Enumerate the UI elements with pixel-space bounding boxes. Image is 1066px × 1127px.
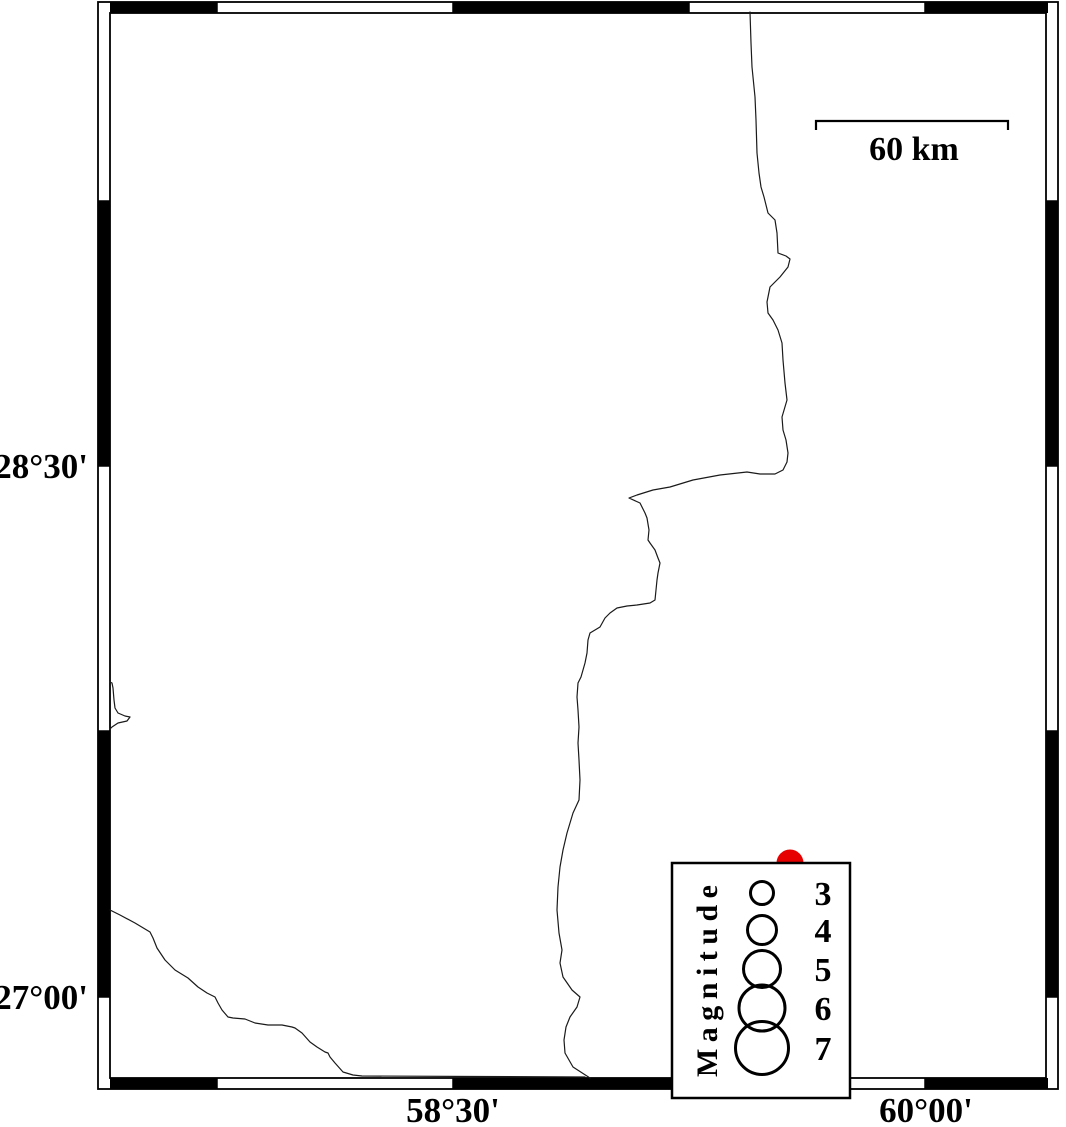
- frame-segment: [925, 1078, 1048, 1089]
- coastline-southwest: [110, 910, 585, 1077]
- legend-value-m3: 3: [815, 876, 832, 913]
- lon-tick-label-6000: 60°00': [879, 1091, 973, 1127]
- lat-tick-label-2830: 28°30': [0, 447, 88, 486]
- seismicity-map-figure: 60 km Magnitude 3 4 5 6 7 28°30' 27°00' …: [0, 0, 1066, 1127]
- frame-segment: [1046, 731, 1058, 997]
- frame-segment: [110, 1078, 217, 1089]
- scale-bar-line: [816, 121, 1008, 130]
- frame-segment: [98, 731, 110, 997]
- legend-value-m6: 6: [815, 991, 832, 1028]
- frame-segment: [925, 2, 1048, 13]
- magnitude-legend: Magnitude 3 4 5 6 7: [672, 863, 850, 1098]
- frame-segment: [98, 201, 110, 466]
- lat-tick-label-2700: 27°00': [0, 978, 88, 1017]
- lon-tick-label-5830: 58°30': [406, 1091, 500, 1127]
- frame-segment: [110, 2, 217, 13]
- scale-bar-label: 60 km: [869, 131, 959, 168]
- frame-inner-rect: [110, 13, 1046, 1078]
- legend-value-m7: 7: [815, 1031, 832, 1068]
- frame-segment: [453, 1078, 689, 1089]
- frame-segment: [453, 2, 689, 13]
- frame-segment: [1046, 201, 1058, 466]
- scale-bar: 60 km: [816, 121, 1008, 168]
- legend-value-m4: 4: [815, 913, 832, 950]
- legend-value-m5: 5: [815, 952, 832, 989]
- coastline-west-cape: [110, 682, 130, 729]
